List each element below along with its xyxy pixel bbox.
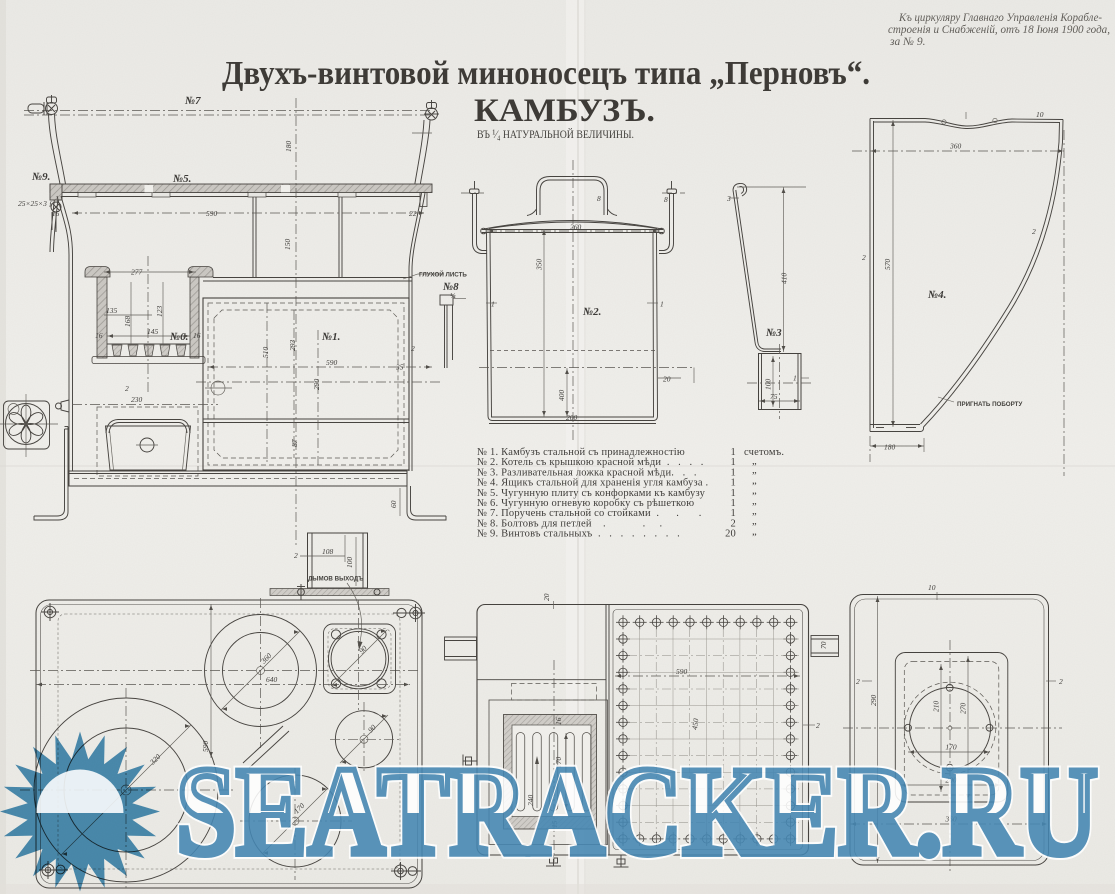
svg-text:87: 87 <box>290 439 299 447</box>
svg-text:2: 2 <box>856 677 860 686</box>
svg-text:№ 9. Винтовъ стальныхъ . .: № 9. Винтовъ стальныхъ . . . . . . . . <box>477 529 680 540</box>
svg-text:2: 2 <box>125 384 129 393</box>
svg-text:450: 450 <box>690 718 700 731</box>
svg-text:100: 100 <box>764 379 773 391</box>
svg-text:№7: №7 <box>184 95 201 107</box>
svg-text:15: 15 <box>52 209 60 218</box>
svg-text:8: 8 <box>664 195 668 204</box>
svg-text:20: 20 <box>542 593 551 601</box>
svg-text:8: 8 <box>597 194 601 203</box>
svg-text:510: 510 <box>261 347 270 359</box>
svg-text:2: 2 <box>411 344 415 353</box>
svg-text:70: 70 <box>819 641 828 649</box>
svg-text:260: 260 <box>570 223 582 232</box>
svg-text:20: 20 <box>663 375 671 384</box>
svg-text:25×25×3 ƒ: 25×25×3 ƒ <box>18 199 53 208</box>
svg-text:№4.: №4. <box>927 289 946 301</box>
svg-text:16: 16 <box>193 331 201 340</box>
svg-text:400: 400 <box>557 390 566 402</box>
svg-text:ГЛУХОЙ ЛИСТЬ: ГЛУХОЙ ЛИСТЬ <box>419 271 467 279</box>
svg-text:10: 10 <box>928 583 936 592</box>
svg-text:2: 2 <box>294 551 298 560</box>
svg-text:123: 123 <box>155 306 164 318</box>
svg-text:290: 290 <box>312 379 321 391</box>
svg-text:2: 2 <box>1059 677 1063 686</box>
svg-text:150: 150 <box>283 239 292 251</box>
svg-text:270: 270 <box>959 703 968 715</box>
svg-text:2: 2 <box>1032 227 1036 236</box>
svg-text:№3: №3 <box>765 327 782 339</box>
svg-text:1: 1 <box>660 300 664 309</box>
svg-text:16: 16 <box>95 331 103 340</box>
svg-text:350: 350 <box>535 259 544 272</box>
svg-text:168: 168 <box>123 316 132 328</box>
svg-text:1: 1 <box>793 374 797 383</box>
svg-text:230: 230 <box>131 395 143 404</box>
svg-text:ВЪ ¹⁄₄ НАТУРАЛЬНОЙ ВЕЛИЧИНЫ.: ВЪ ¹⁄₄ НАТУРАЛЬНОЙ ВЕЛИЧИНЫ. <box>477 127 634 141</box>
svg-text:Двухъ-винтовой миноносецъ типа: Двухъ-винтовой миноносецъ типа „Перновъ“… <box>222 55 870 92</box>
svg-text:180: 180 <box>884 443 896 452</box>
svg-text:ПРИГНАТЬ ПОБОРТУ: ПРИГНАТЬ ПОБОРТУ <box>957 401 1022 408</box>
svg-text:210: 210 <box>932 701 941 713</box>
svg-text:КАМБУЗЪ.: КАМБУЗЪ. <box>474 93 655 129</box>
svg-text:№9.: №9. <box>31 171 50 183</box>
svg-text:590: 590 <box>676 667 688 676</box>
svg-text:570: 570 <box>883 259 892 271</box>
svg-text:№2.: №2. <box>582 306 601 318</box>
svg-text:145: 145 <box>147 327 159 336</box>
svg-text:277: 277 <box>131 268 143 277</box>
svg-text:20: 20 <box>725 529 736 540</box>
svg-text:135: 135 <box>106 306 118 315</box>
svg-text:№1.: №1. <box>321 331 340 343</box>
svg-text:180: 180 <box>284 141 293 153</box>
svg-text:10: 10 <box>1036 110 1044 119</box>
svg-text:ДЫМОВ ВЫХОДЪ: ДЫМОВ ВЫХОДЪ <box>308 576 364 583</box>
svg-text:22: 22 <box>409 209 417 218</box>
svg-text:290: 290 <box>869 695 878 707</box>
svg-text:2: 2 <box>862 253 866 262</box>
svg-text:SEATRACKER.RU: SEATRACKER.RU <box>176 742 1098 882</box>
svg-text:1: 1 <box>491 300 495 309</box>
svg-text:3: 3 <box>726 194 731 203</box>
svg-text:100: 100 <box>345 557 354 569</box>
svg-text:640: 640 <box>266 675 278 684</box>
svg-text:200: 200 <box>566 413 578 422</box>
svg-text:строенія и Снабженій, отъ 18 І: строенія и Снабженій, отъ 18 Іюня 1900 г… <box>888 23 1110 36</box>
svg-text:293: 293 <box>288 340 297 352</box>
svg-text:410: 410 <box>780 273 789 285</box>
svg-text:2: 2 <box>816 721 820 730</box>
svg-text:16: 16 <box>554 717 563 725</box>
svg-text:60: 60 <box>389 500 398 508</box>
svg-text:75: 75 <box>770 392 778 401</box>
svg-text:Къ циркуляру Главнаго Управлен: Къ циркуляру Главнаго Управленія Корабле… <box>898 12 1102 24</box>
svg-text:590: 590 <box>326 358 338 367</box>
svg-text:35: 35 <box>395 363 404 372</box>
svg-text:счетомъ.: счетомъ. <box>744 447 784 458</box>
svg-text:108: 108 <box>322 547 334 556</box>
svg-text:за № 9.: за № 9. <box>889 36 925 48</box>
svg-text:№5.: №5. <box>172 173 191 185</box>
svg-text:590: 590 <box>206 209 218 218</box>
svg-text:„: „ <box>752 526 757 537</box>
svg-text:360: 360 <box>949 142 962 151</box>
